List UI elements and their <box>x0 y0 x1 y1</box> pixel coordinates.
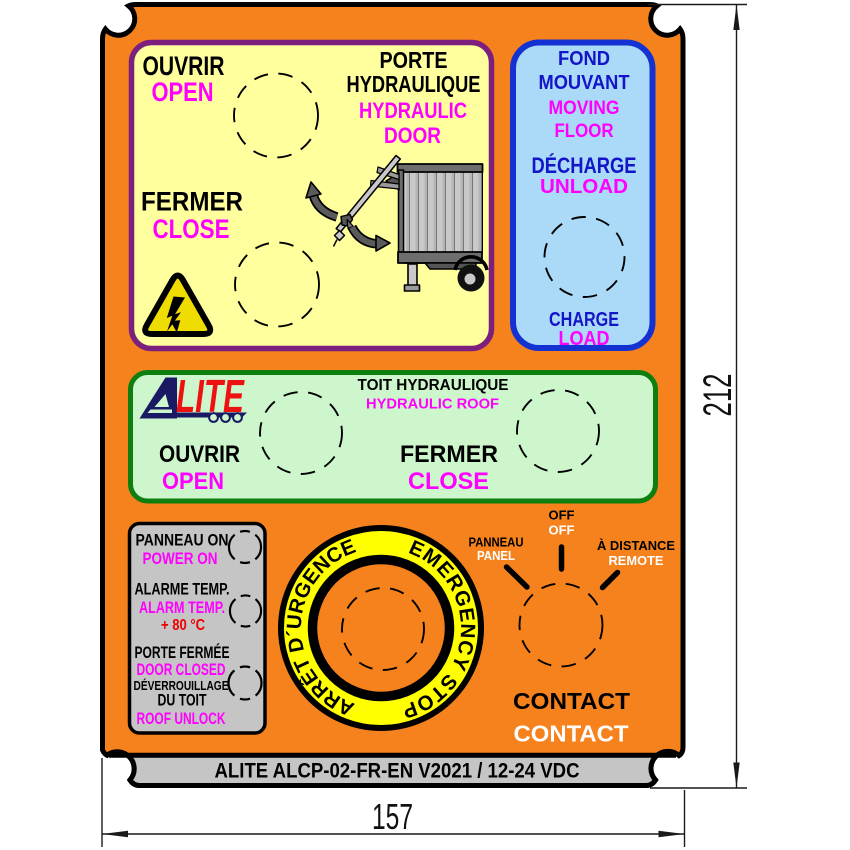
svg-text:FLOOR: FLOOR <box>555 121 614 142</box>
svg-text:HYDRAULIC ROOF: HYDRAULIC ROOF <box>366 396 499 413</box>
svg-text:POWER ON: POWER ON <box>143 549 218 568</box>
svg-text:ALARM TEMP.: ALARM TEMP. <box>139 598 225 617</box>
svg-text:ROOF UNLOCK: ROOF UNLOCK <box>137 709 227 728</box>
svg-text:+ 80 °C: + 80 °C <box>161 617 205 634</box>
svg-text:ALARME TEMP.: ALARME TEMP. <box>135 580 230 599</box>
svg-text:MOUVANT: MOUVANT <box>539 72 630 94</box>
svg-text:OPEN: OPEN <box>162 468 224 495</box>
svg-text:OPEN: OPEN <box>152 77 214 107</box>
svg-text:FERMER: FERMER <box>141 187 243 217</box>
svg-text:PANNEAU: PANNEAU <box>469 536 524 550</box>
svg-text:CLOSE: CLOSE <box>153 214 230 244</box>
svg-text:DOOR: DOOR <box>384 123 441 148</box>
svg-text:FERMER: FERMER <box>400 441 498 468</box>
svg-text:OUVRIR: OUVRIR <box>159 441 240 468</box>
svg-text:HYDRAULIC: HYDRAULIC <box>359 98 467 123</box>
svg-text:PANNEAU ON: PANNEAU ON <box>136 531 229 550</box>
svg-text:157: 157 <box>372 796 413 837</box>
svg-text:212: 212 <box>696 374 740 417</box>
svg-text:HYDRAULIQUE: HYDRAULIQUE <box>347 71 481 97</box>
svg-text:PANEL: PANEL <box>477 549 515 563</box>
svg-text:DOOR CLOSED: DOOR CLOSED <box>137 660 226 679</box>
svg-text:DÉCHARGE: DÉCHARGE <box>532 153 637 178</box>
svg-text:OFF: OFF <box>549 508 575 523</box>
svg-text:FOND: FOND <box>558 48 610 70</box>
svg-text:DU TOIT: DU TOIT <box>158 691 207 710</box>
svg-text:UNLOAD: UNLOAD <box>540 176 628 198</box>
svg-text:OFF: OFF <box>549 523 575 538</box>
svg-text:ALITE ALCP-02-FR-EN V2021 / 12: ALITE ALCP-02-FR-EN V2021 / 12-24 VDC <box>215 760 580 783</box>
svg-text:REMOTE: REMOTE <box>609 554 664 568</box>
svg-text:CLOSE: CLOSE <box>408 468 489 495</box>
svg-text:LOAD: LOAD <box>559 328 610 350</box>
svg-text:CONTACT: CONTACT <box>514 721 630 747</box>
svg-text:CONTACT: CONTACT <box>513 688 631 714</box>
svg-text:TOIT HYDRAULIQUE: TOIT HYDRAULIQUE <box>358 377 509 394</box>
svg-text:À DISTANCE: À DISTANCE <box>597 538 675 553</box>
svg-text:PORTE: PORTE <box>380 47 448 73</box>
svg-text:MOVING: MOVING <box>549 98 620 119</box>
